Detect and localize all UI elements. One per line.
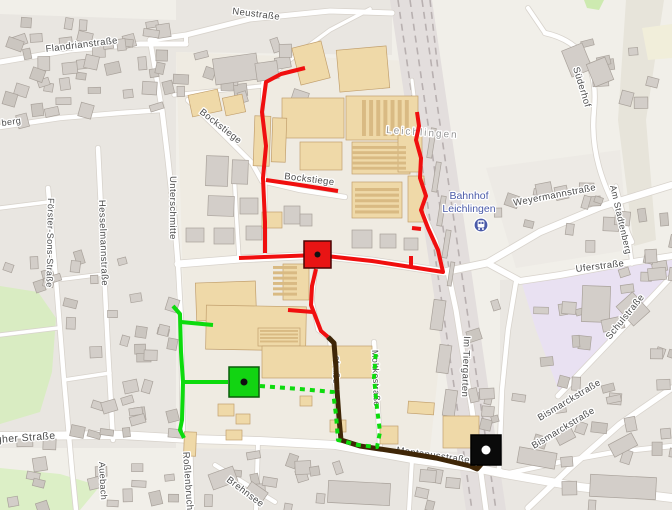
building bbox=[282, 98, 344, 138]
building bbox=[246, 226, 262, 240]
building bbox=[645, 249, 657, 263]
building bbox=[62, 62, 78, 75]
building bbox=[586, 241, 595, 253]
building bbox=[591, 422, 608, 434]
building bbox=[222, 94, 245, 116]
building bbox=[565, 223, 574, 235]
route-red-segment bbox=[288, 310, 313, 312]
building bbox=[88, 87, 101, 93]
building bbox=[327, 480, 390, 505]
building bbox=[637, 208, 647, 222]
building bbox=[100, 428, 114, 436]
building bbox=[628, 47, 638, 55]
building bbox=[226, 430, 242, 440]
building bbox=[588, 500, 596, 510]
building bbox=[581, 286, 610, 323]
building bbox=[650, 349, 662, 359]
building bbox=[70, 425, 86, 439]
marker-black-square[interactable] bbox=[471, 435, 501, 465]
building bbox=[634, 97, 648, 109]
building bbox=[648, 267, 667, 281]
building bbox=[572, 335, 580, 347]
building bbox=[30, 33, 43, 42]
building bbox=[30, 257, 38, 270]
street-label: Unterschmitte bbox=[167, 176, 178, 240]
building bbox=[70, 260, 81, 272]
building bbox=[352, 230, 372, 248]
building bbox=[64, 18, 73, 30]
building bbox=[59, 77, 70, 90]
building bbox=[155, 62, 165, 74]
building bbox=[212, 53, 259, 85]
building bbox=[208, 196, 235, 217]
building bbox=[236, 414, 250, 424]
building bbox=[144, 350, 158, 361]
building bbox=[657, 379, 671, 390]
building bbox=[589, 474, 656, 499]
building bbox=[186, 228, 204, 242]
building bbox=[446, 477, 461, 488]
building bbox=[232, 160, 249, 185]
building bbox=[84, 54, 100, 70]
building bbox=[214, 228, 234, 244]
building bbox=[295, 461, 311, 475]
building bbox=[21, 17, 32, 28]
building bbox=[123, 89, 133, 98]
building bbox=[512, 393, 526, 402]
building bbox=[157, 324, 169, 336]
marker-center-dot bbox=[241, 379, 248, 386]
building bbox=[79, 20, 87, 31]
train-station-icon[interactable] bbox=[474, 218, 488, 232]
building bbox=[262, 477, 277, 488]
marker-center-dot bbox=[482, 446, 491, 455]
marker-center-dot bbox=[315, 252, 321, 258]
building bbox=[132, 464, 143, 472]
building bbox=[167, 338, 178, 351]
building bbox=[561, 456, 574, 467]
building bbox=[142, 81, 157, 95]
building bbox=[660, 428, 671, 439]
building bbox=[205, 156, 228, 187]
building bbox=[380, 426, 398, 444]
building bbox=[38, 56, 50, 70]
building bbox=[300, 214, 312, 226]
building bbox=[135, 326, 148, 338]
building bbox=[562, 481, 577, 495]
building bbox=[404, 238, 418, 250]
building bbox=[108, 310, 118, 317]
building bbox=[300, 142, 342, 170]
building bbox=[132, 480, 147, 487]
building bbox=[173, 74, 189, 84]
station-label-line2: Leichlingen bbox=[442, 203, 495, 215]
building bbox=[164, 474, 174, 481]
street-label: Auebach bbox=[97, 462, 109, 501]
station-label-line1: Bahnhof bbox=[449, 190, 488, 202]
street-label: Im Tiergarten bbox=[459, 336, 472, 398]
marker-red-square[interactable] bbox=[304, 241, 331, 268]
building bbox=[156, 50, 168, 61]
building bbox=[218, 404, 234, 416]
building bbox=[380, 234, 396, 248]
map-viewport[interactable]: NeustraßeFlandrianstraßebergBockstiegeBo… bbox=[0, 0, 672, 510]
building bbox=[123, 379, 139, 394]
building bbox=[336, 46, 389, 92]
building bbox=[309, 466, 320, 476]
building bbox=[90, 346, 102, 358]
map-canvas[interactable]: NeustraßeFlandrianstraßebergBockstiegeBo… bbox=[0, 0, 672, 510]
building bbox=[279, 44, 292, 57]
building bbox=[66, 317, 76, 329]
building bbox=[660, 213, 669, 226]
building bbox=[420, 469, 437, 482]
building bbox=[177, 86, 185, 96]
building bbox=[540, 357, 553, 367]
route-red-segment bbox=[412, 228, 421, 229]
building bbox=[534, 307, 549, 314]
building bbox=[168, 494, 178, 502]
building bbox=[562, 302, 577, 315]
building bbox=[624, 416, 637, 432]
building bbox=[166, 409, 180, 423]
building bbox=[130, 293, 143, 303]
building bbox=[316, 493, 325, 504]
building bbox=[262, 346, 372, 378]
building bbox=[138, 57, 147, 71]
building bbox=[271, 118, 287, 162]
marker-green-square[interactable] bbox=[229, 367, 259, 397]
street-label: Förster-Sons-Straße bbox=[44, 198, 56, 288]
building bbox=[90, 275, 98, 284]
building bbox=[107, 500, 118, 507]
building bbox=[481, 406, 494, 417]
building bbox=[32, 457, 47, 472]
building bbox=[408, 401, 435, 415]
building bbox=[240, 198, 258, 214]
building bbox=[31, 103, 44, 117]
building bbox=[204, 495, 212, 507]
building bbox=[652, 442, 662, 455]
building bbox=[284, 206, 300, 224]
building bbox=[7, 496, 19, 507]
building bbox=[479, 418, 492, 431]
building bbox=[491, 415, 500, 423]
building bbox=[123, 489, 133, 502]
building bbox=[300, 396, 312, 406]
building bbox=[56, 98, 71, 105]
building bbox=[122, 427, 130, 437]
building bbox=[479, 388, 494, 399]
